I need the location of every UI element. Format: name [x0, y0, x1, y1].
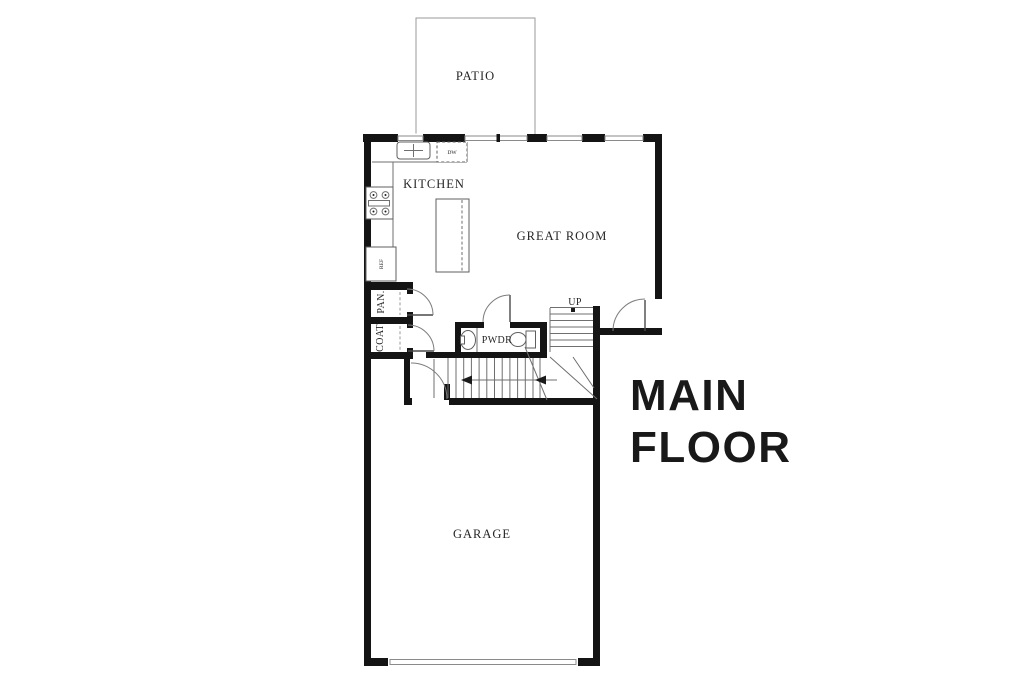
title-line-1: MAIN	[630, 371, 748, 420]
window-frame	[398, 136, 423, 141]
jamb-pantry-top	[407, 282, 413, 294]
floorplan-drawing: DW REF	[0, 0, 1024, 683]
wall-powder-top-left	[455, 322, 484, 328]
wall-hall-garage-nook	[404, 352, 410, 405]
refrigerator-label: REF	[379, 259, 385, 269]
powder-room-label: PWDR	[482, 335, 513, 346]
wall-right-greatroom	[655, 134, 662, 299]
island-outline	[436, 199, 469, 272]
toilet-tank-icon	[526, 331, 536, 348]
window-frame	[605, 136, 643, 141]
stove	[366, 187, 393, 219]
wall-pantry-coat-divider	[364, 317, 413, 324]
burner-dot	[373, 194, 375, 196]
kitchen-island	[436, 199, 469, 272]
stove-outline	[366, 187, 393, 219]
window-mullion	[497, 134, 501, 142]
kitchen-sink	[397, 142, 430, 159]
garage-label: GARAGE	[453, 527, 511, 541]
refrigerator: REF	[366, 247, 396, 281]
garage-door-panel	[390, 660, 576, 665]
wall-right-stair-garage	[593, 306, 600, 666]
patio-label: PATIO	[456, 69, 495, 83]
burner-dot	[385, 194, 387, 196]
burner-dot	[385, 211, 387, 213]
stair-start-dot	[571, 308, 575, 312]
toilet-bowl-icon	[510, 333, 526, 347]
burner-dot	[373, 211, 375, 213]
floorplan-canvas: DW REF	[0, 0, 1024, 683]
dishwasher-label: DW	[447, 150, 457, 156]
up-label: UP	[568, 297, 582, 308]
coat-label: COAT	[375, 324, 386, 352]
title-line-2: FLOOR	[630, 423, 791, 472]
kitchen-label: KITCHEN	[403, 177, 465, 191]
wall-below-ref	[364, 282, 413, 290]
great-room-label: GREAT ROOM	[517, 229, 608, 243]
pantry-label: PAN.	[376, 290, 387, 313]
dishwasher: DW	[437, 142, 467, 162]
wall-garage-top-left	[404, 398, 412, 405]
sink-tap-icon	[461, 336, 465, 344]
window-frame	[547, 136, 582, 141]
wall-garage-top	[449, 398, 597, 405]
window-frame	[465, 136, 527, 141]
wall-greatroom-bottom-right	[597, 328, 662, 335]
